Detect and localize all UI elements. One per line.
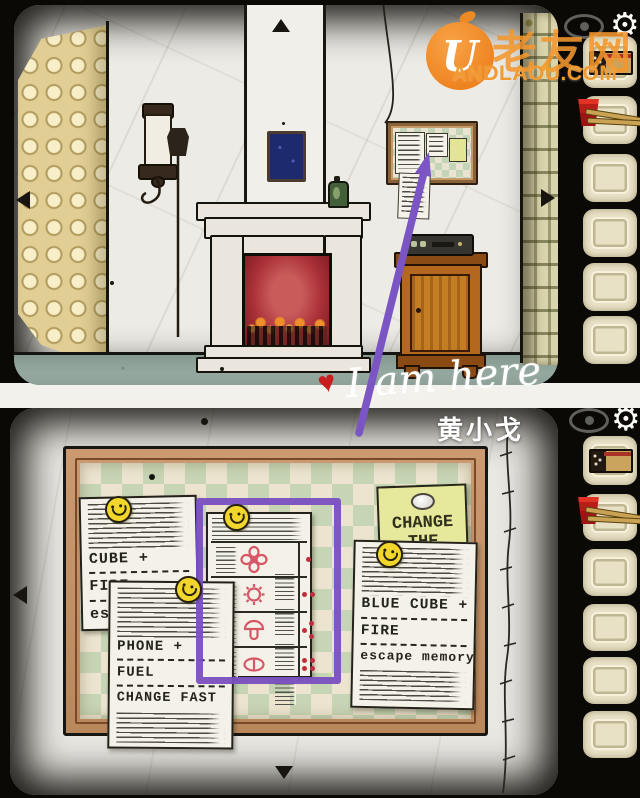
screenshot-stage: ⚙ U 老友网 ANDLAOU.COM CHANGE THE	[0, 0, 640, 798]
nav-up-arrow[interactable]	[272, 19, 290, 32]
matchbox-item[interactable]	[589, 449, 633, 473]
inventory-slot-6[interactable]	[583, 316, 637, 364]
black-pin	[201, 418, 208, 425]
illegible-text	[88, 502, 189, 550]
watermark-site-text: ANDLAOU.COM	[452, 62, 617, 86]
inventory-slot-6[interactable]	[583, 711, 637, 758]
nav-left-arrow[interactable]	[16, 191, 30, 209]
nav-right-arrow[interactable]	[541, 189, 555, 207]
paper-title: BLUE CUBE +	[361, 596, 467, 615]
inventory-slot-3[interactable]	[583, 549, 637, 596]
paper-title: CUBE +	[89, 549, 189, 568]
inventory-slot-1[interactable]	[583, 436, 637, 485]
gear-icon[interactable]: ⚙	[611, 402, 640, 435]
inventory-slot-2[interactable]	[583, 494, 637, 541]
inventory-slot-4[interactable]	[583, 604, 637, 651]
inventory-slot-2[interactable]	[583, 96, 637, 144]
purple-highlight-rectangle	[196, 498, 341, 684]
illegible-text	[116, 712, 224, 743]
note-pin-icon	[411, 493, 436, 511]
inventory-slot-5[interactable]	[583, 657, 637, 704]
fly-dot	[110, 281, 114, 285]
illegible-text	[359, 670, 466, 702]
inventory-slot-3[interactable]	[583, 154, 637, 202]
board-closeup-view: CHANGE THE CUBE + FIRE esc	[10, 408, 558, 795]
signature-text: 黄小戈	[437, 410, 524, 447]
inventory-slot-5[interactable]	[583, 263, 637, 311]
paper-line: escape memory	[360, 649, 466, 666]
paper-line: FIRE	[361, 623, 467, 642]
paper-line: CHANGE FAST	[117, 691, 225, 707]
black-pin	[149, 474, 155, 480]
eye-icon[interactable]	[569, 408, 609, 433]
paper-blue-cube[interactable]: BLUE CUBE + FIRE escape memory	[350, 540, 477, 711]
nav-down-arrow[interactable]	[275, 766, 293, 779]
inventory-slot-4[interactable]	[583, 209, 637, 257]
nav-left-arrow[interactable]	[13, 586, 27, 604]
note-line-1: CHANGE	[379, 514, 466, 536]
fly-dot	[220, 367, 224, 371]
